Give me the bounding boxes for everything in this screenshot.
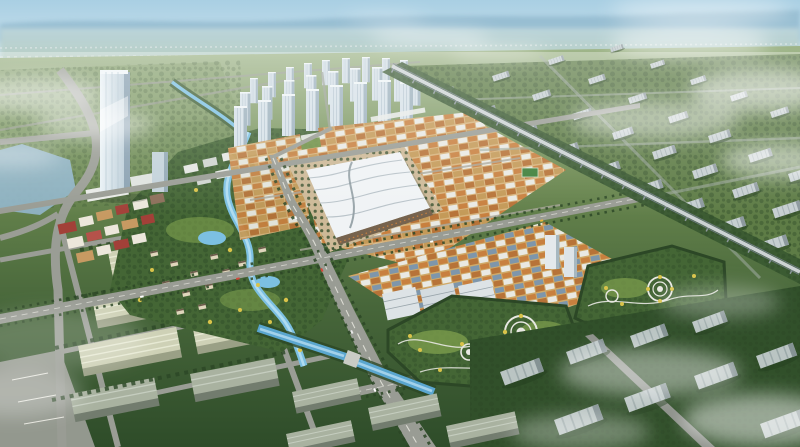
aerial-city-rendering [0,0,800,447]
pond [198,231,226,245]
